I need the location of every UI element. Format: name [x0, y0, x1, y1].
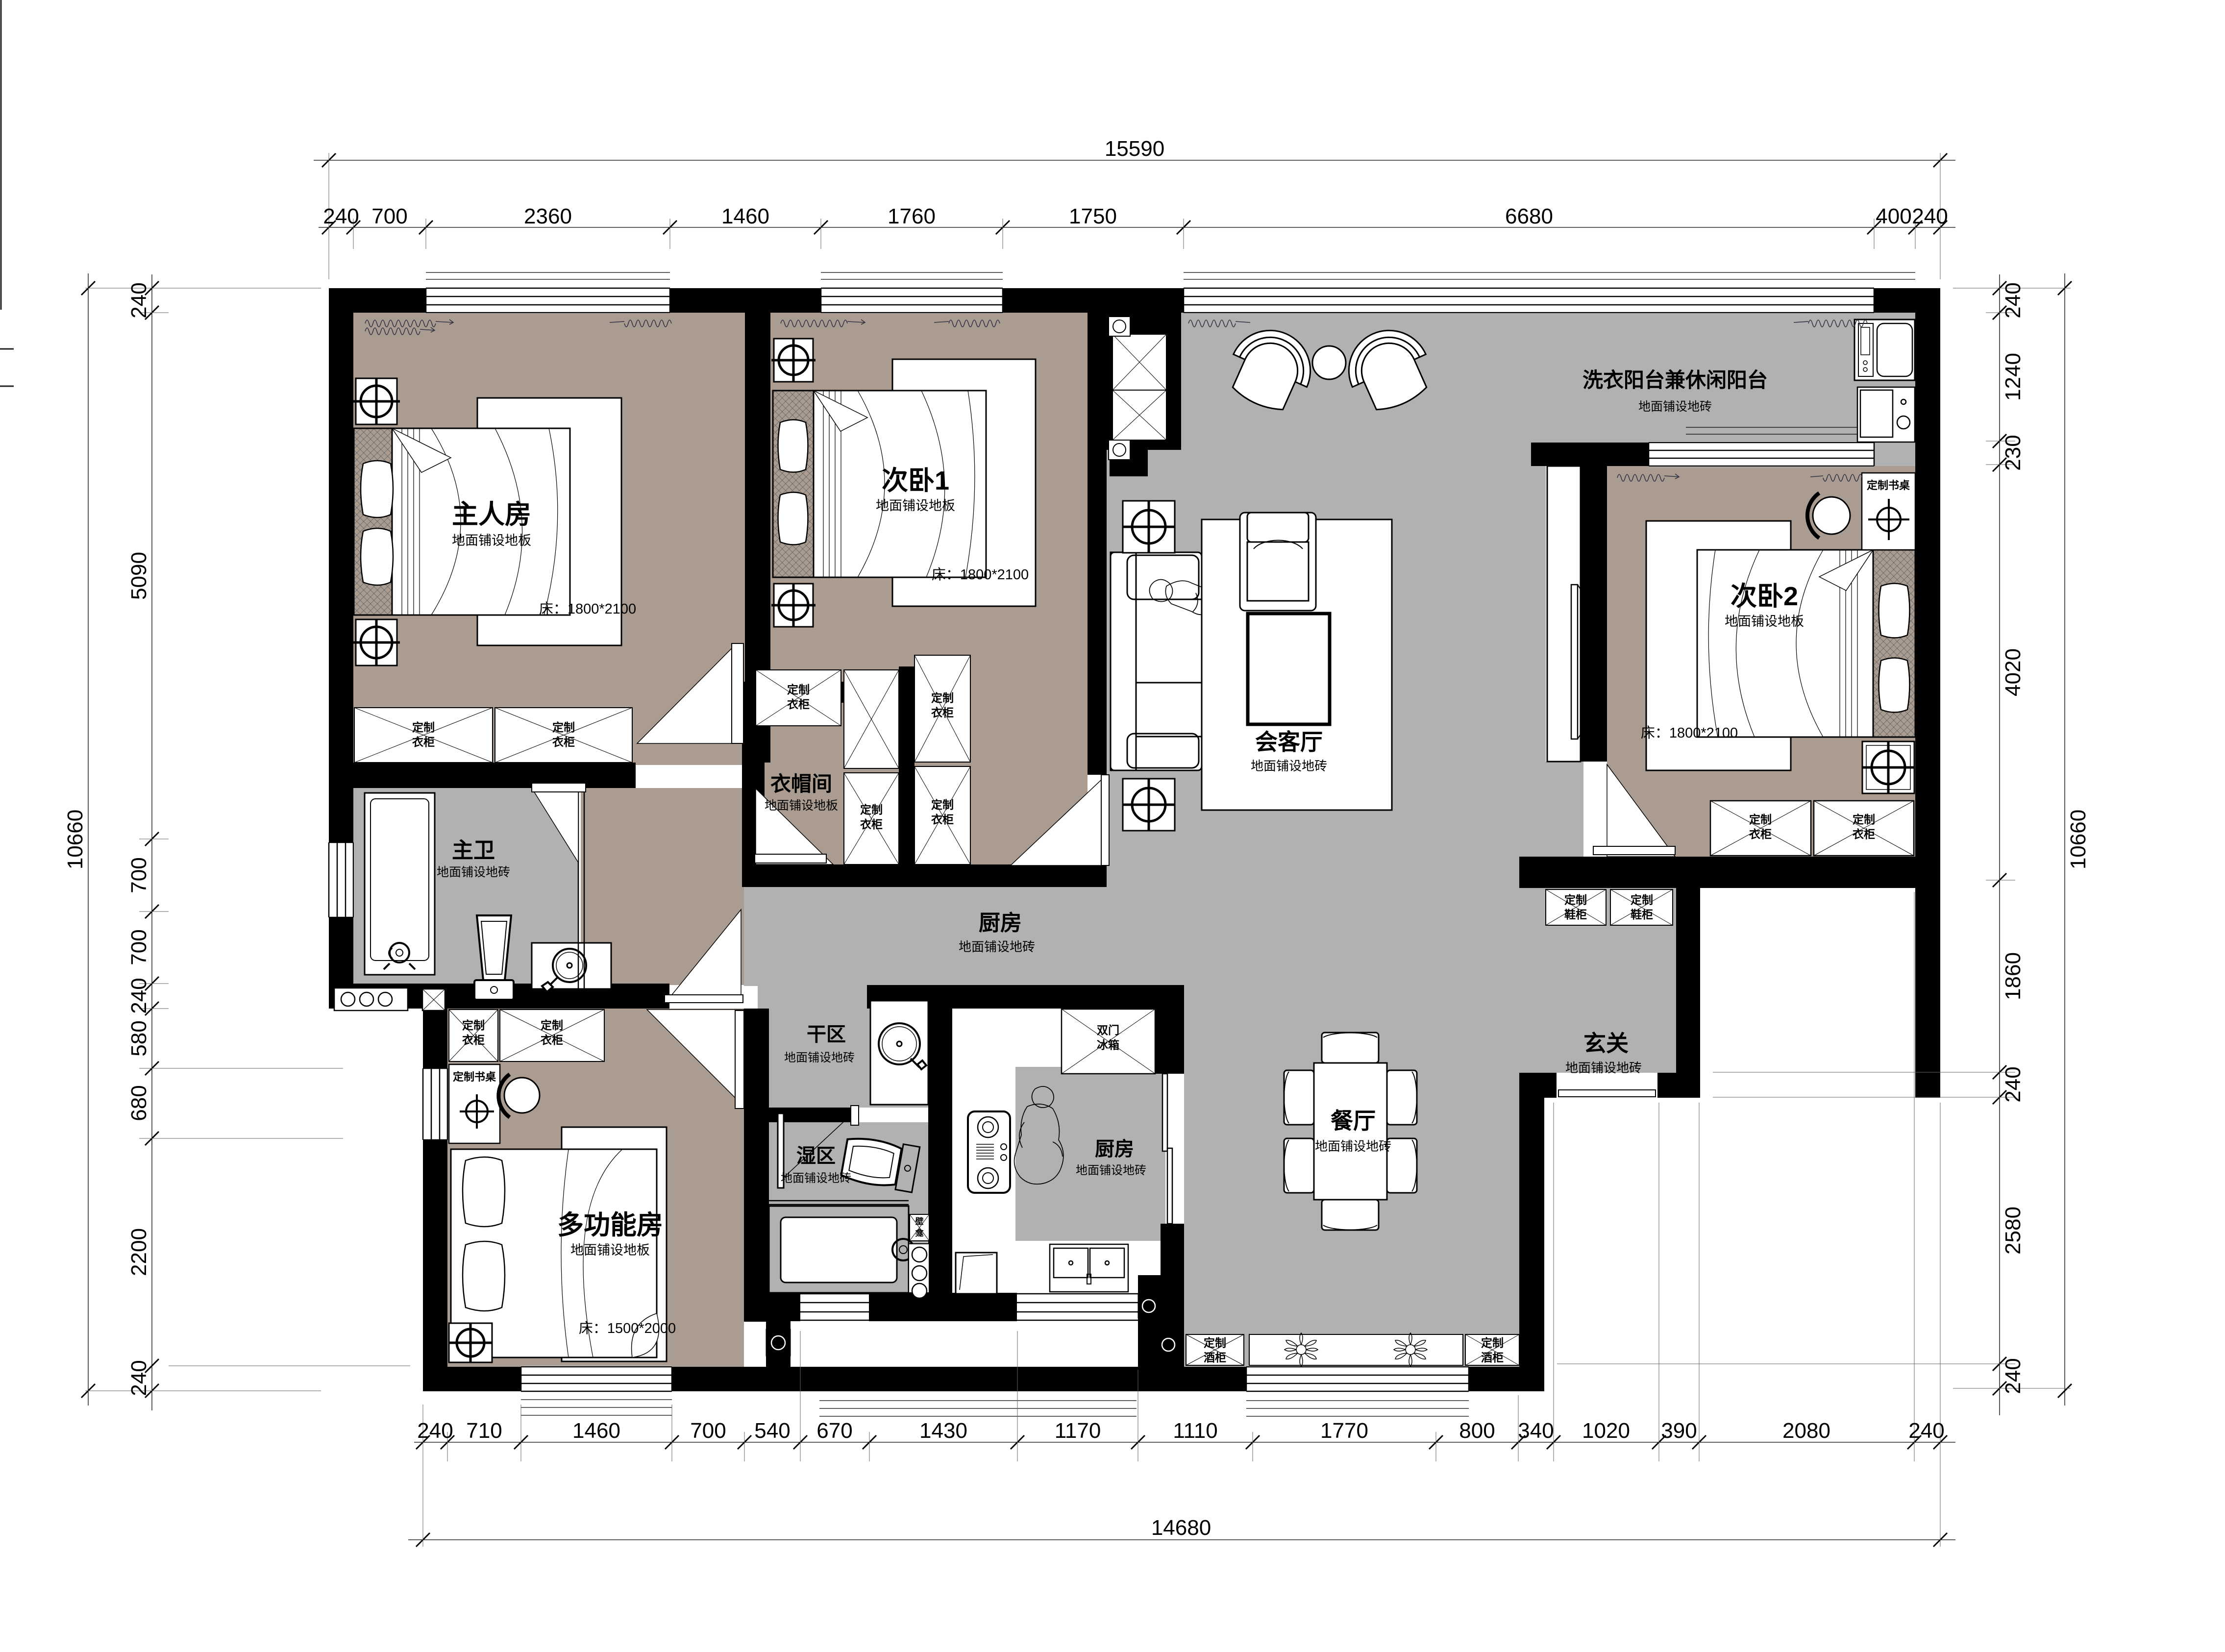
svg-text:1860: 1860: [2001, 952, 2025, 1000]
svg-text:地面铺设地砖: 地面铺设地砖: [784, 1051, 855, 1064]
svg-text:2080: 2080: [1782, 1419, 1830, 1443]
svg-text:衣柜: 衣柜: [462, 1034, 485, 1046]
svg-text:定制: 定制: [1481, 1336, 1504, 1349]
svg-text:定制: 定制: [412, 721, 435, 734]
svg-text:240: 240: [127, 282, 151, 318]
svg-text:2360: 2360: [524, 204, 572, 228]
svg-text:15590: 15590: [1105, 137, 1164, 161]
svg-text:1770: 1770: [1320, 1419, 1368, 1443]
svg-text:床：1800*2100: 床：1800*2100: [1641, 725, 1738, 741]
svg-text:定制: 定制: [1204, 1336, 1226, 1349]
svg-text:定制: 定制: [931, 691, 954, 704]
svg-text:餐厅: 餐厅: [1331, 1108, 1376, 1134]
svg-text:定制书桌: 定制书桌: [1867, 479, 1910, 492]
svg-text:540: 540: [754, 1419, 790, 1443]
svg-text:定制: 定制: [931, 798, 954, 811]
svg-text:鞋柜: 鞋柜: [1631, 908, 1653, 921]
svg-text:240: 240: [2001, 282, 2025, 318]
svg-text:酒柜: 酒柜: [1481, 1351, 1504, 1364]
svg-text:地面铺设地板: 地面铺设地板: [570, 1243, 650, 1257]
svg-text:2200: 2200: [127, 1228, 151, 1276]
svg-text:衣柜: 衣柜: [541, 1034, 563, 1046]
svg-text:700: 700: [127, 929, 151, 965]
svg-text:240: 240: [2001, 1358, 2025, 1394]
svg-text:地面铺设地板: 地面铺设地板: [452, 533, 531, 548]
svg-text:地面铺设地板: 地面铺设地板: [1725, 614, 1804, 629]
svg-text:400: 400: [1876, 204, 1911, 228]
svg-text:玄关: 玄关: [1583, 1031, 1629, 1056]
svg-text:340: 340: [1518, 1419, 1554, 1443]
svg-text:670: 670: [816, 1419, 852, 1443]
svg-text:2580: 2580: [2001, 1207, 2025, 1255]
svg-text:390: 390: [1661, 1419, 1697, 1443]
svg-text:定制: 定制: [1853, 813, 1875, 826]
svg-text:240: 240: [1908, 1419, 1944, 1443]
svg-text:地面铺设地砖: 地面铺设地砖: [781, 1172, 851, 1185]
svg-text:衣柜: 衣柜: [931, 706, 954, 719]
svg-text:衣柜: 衣柜: [1749, 828, 1772, 840]
svg-text:240: 240: [127, 1360, 151, 1396]
svg-text:700: 700: [371, 204, 407, 228]
svg-text:700: 700: [690, 1419, 726, 1443]
svg-text:1750: 1750: [1069, 204, 1117, 228]
svg-text:主人房: 主人房: [452, 500, 531, 529]
svg-text:鞋柜: 鞋柜: [1564, 908, 1587, 921]
svg-text:240: 240: [323, 204, 359, 228]
svg-text:710: 710: [466, 1419, 502, 1443]
svg-text:冰箱: 冰箱: [1097, 1038, 1119, 1051]
svg-text:240: 240: [417, 1419, 453, 1443]
svg-text:定制: 定制: [1749, 813, 1772, 826]
svg-text:衣帽间: 衣帽间: [770, 772, 832, 795]
svg-text:双门: 双门: [1097, 1024, 1119, 1036]
svg-text:地面铺设地板: 地面铺设地板: [765, 799, 838, 813]
svg-text:240: 240: [127, 978, 151, 1013]
svg-text:地面铺设地砖: 地面铺设地砖: [1638, 400, 1712, 414]
svg-text:700: 700: [127, 857, 151, 893]
svg-text:1760: 1760: [888, 204, 936, 228]
svg-text:1170: 1170: [1055, 1419, 1101, 1443]
svg-text:地面铺设地砖: 地面铺设地砖: [1251, 759, 1327, 773]
svg-text:定制: 定制: [462, 1019, 485, 1032]
svg-text:床：1800*2100: 床：1800*2100: [539, 601, 636, 617]
svg-text:床：1800*2100: 床：1800*2100: [932, 567, 1029, 583]
svg-text:14680: 14680: [1151, 1516, 1211, 1540]
svg-text:酒柜: 酒柜: [1204, 1351, 1226, 1364]
svg-text:10660: 10660: [2066, 810, 2090, 869]
svg-text:龛: 龛: [915, 1228, 924, 1238]
svg-text:5090: 5090: [127, 552, 151, 600]
svg-text:定制书桌: 定制书桌: [453, 1071, 496, 1083]
svg-text:厨房: 厨房: [979, 911, 1022, 935]
svg-text:地面铺设地砖: 地面铺设地砖: [437, 865, 510, 879]
svg-text:240: 240: [2001, 1066, 2025, 1102]
svg-text:定制: 定制: [787, 683, 810, 696]
svg-text:厨房: 厨房: [1095, 1138, 1134, 1160]
svg-text:地面铺设地砖: 地面铺设地砖: [1315, 1139, 1391, 1154]
svg-text:地面铺设地砖: 地面铺设地砖: [1565, 1060, 1642, 1075]
svg-text:240: 240: [1912, 204, 1948, 228]
svg-text:衣柜: 衣柜: [412, 736, 435, 748]
svg-text:主卫: 主卫: [452, 838, 495, 863]
svg-text:10660: 10660: [63, 810, 87, 869]
svg-text:次卧2: 次卧2: [1731, 582, 1798, 611]
svg-text:湿区: 湿区: [796, 1145, 836, 1167]
svg-text:衣柜: 衣柜: [1853, 828, 1875, 840]
svg-text:定制: 定制: [1564, 893, 1587, 906]
svg-text:床：1500*2000: 床：1500*2000: [579, 1320, 676, 1336]
svg-text:1020: 1020: [1582, 1419, 1630, 1443]
svg-text:干区: 干区: [807, 1024, 846, 1045]
svg-text:1240: 1240: [2001, 353, 2025, 401]
svg-text:4020: 4020: [2001, 648, 2025, 696]
svg-text:定制: 定制: [541, 1019, 563, 1032]
svg-text:定制: 定制: [1631, 893, 1653, 906]
svg-text:衣柜: 衣柜: [787, 698, 810, 711]
svg-text:衣柜: 衣柜: [860, 818, 883, 831]
svg-text:1460: 1460: [721, 204, 769, 228]
svg-text:洗衣阳台兼休闲阳台: 洗衣阳台兼休闲阳台: [1582, 369, 1768, 392]
svg-text:230: 230: [2001, 435, 2025, 470]
svg-text:1430: 1430: [919, 1419, 967, 1443]
svg-text:多功能房: 多功能房: [557, 1210, 663, 1240]
svg-text:地面铺设地板: 地面铺设地板: [876, 498, 955, 513]
svg-text:680: 680: [127, 1085, 151, 1121]
svg-text:次卧1: 次卧1: [882, 466, 949, 495]
svg-text:衣柜: 衣柜: [552, 736, 575, 748]
svg-text:定制: 定制: [860, 803, 883, 816]
svg-text:800: 800: [1459, 1419, 1495, 1443]
svg-text:地面铺设地砖: 地面铺设地砖: [1076, 1164, 1146, 1177]
svg-text:6680: 6680: [1505, 204, 1553, 228]
svg-text:地面铺设地砖: 地面铺设地砖: [959, 939, 1035, 954]
svg-text:会客厅: 会客厅: [1255, 729, 1323, 755]
svg-text:1110: 1110: [1173, 1419, 1217, 1443]
svg-text:衣柜: 衣柜: [931, 813, 954, 826]
svg-text:1460: 1460: [572, 1419, 620, 1443]
svg-text:壁: 壁: [915, 1216, 924, 1226]
svg-text:定制: 定制: [552, 721, 575, 734]
svg-text:580: 580: [127, 1020, 151, 1056]
